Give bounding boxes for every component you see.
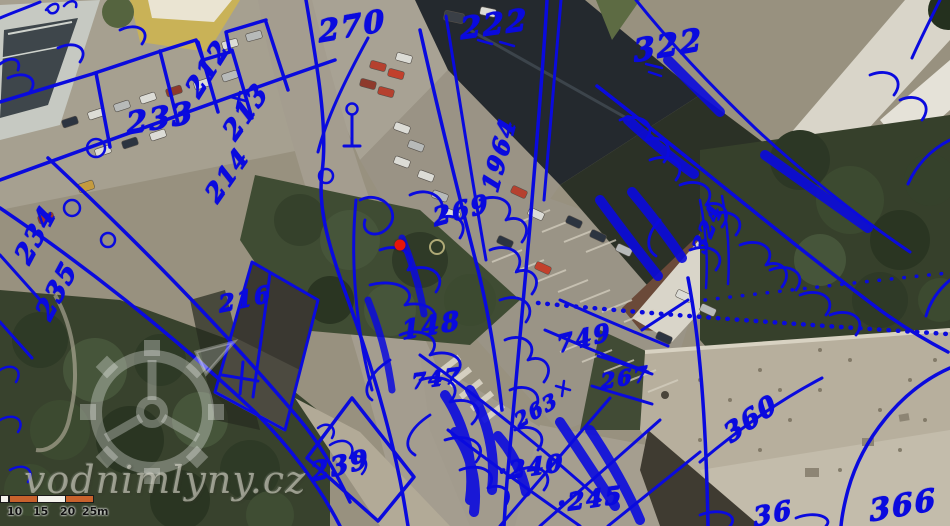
- scale-tick-15: 15: [33, 505, 48, 518]
- ground-ring-symbol: [430, 240, 444, 254]
- scale-tick-labels: 10152025: [0, 505, 130, 521]
- scale-tick-20: 20: [60, 505, 75, 518]
- map-viewport[interactable]: 2702223222122132332142342352161964269148…: [0, 0, 950, 526]
- scale-segment-white: [37, 495, 66, 503]
- scale-segment-orange: [9, 495, 38, 503]
- mill-location-marker[interactable]: [395, 240, 406, 251]
- scale-segment-orange: [65, 495, 94, 503]
- scale-unit-label: m: [97, 505, 108, 518]
- scale-segment-white: [0, 495, 9, 503]
- scale-tick-10: 10: [7, 505, 22, 518]
- cadastral-overlay-layer: [0, 0, 950, 526]
- scale-tick-25: 25: [82, 505, 97, 518]
